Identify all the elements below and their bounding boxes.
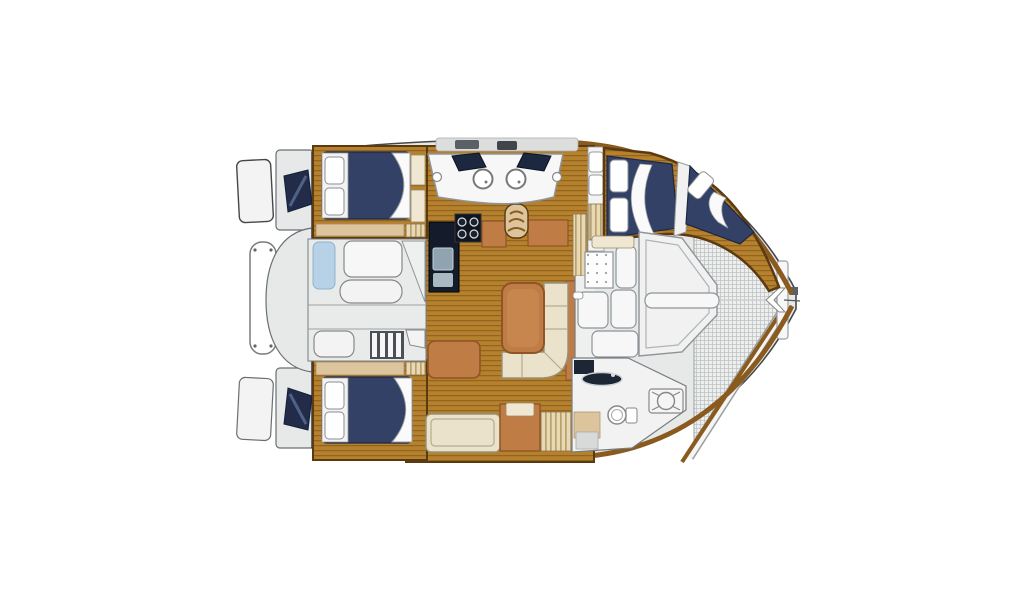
saloon-chaise [428, 341, 480, 378]
entry-locker [589, 175, 603, 195]
galley-cabinet-left [482, 221, 506, 247]
cockpit-table [344, 241, 402, 277]
striped-locker [406, 362, 425, 375]
striped-locker [406, 224, 425, 237]
pillow [325, 382, 344, 409]
island-sink [507, 170, 526, 189]
faucet [611, 373, 615, 377]
deck-hatch [649, 389, 683, 413]
head-mat-gray [576, 432, 598, 449]
transom-steps-port [284, 170, 312, 212]
pillow [325, 157, 344, 184]
cockpit-bench [340, 280, 402, 303]
cockpit-seat [314, 331, 354, 357]
roof-hatch [455, 140, 479, 149]
island-knob [433, 173, 442, 182]
catamaran-floor-plan [0, 0, 1024, 600]
stove [455, 214, 481, 242]
striped-lockers [541, 412, 574, 451]
head-sink [582, 373, 622, 386]
floor-plan-stage [0, 0, 1024, 600]
pillow [325, 188, 344, 215]
galley-cabinet-right [528, 220, 568, 246]
deck-locker [592, 236, 634, 248]
galley-locker [433, 273, 453, 287]
aft-cockpit [308, 239, 426, 361]
toilet [608, 406, 637, 424]
deck-seat [611, 290, 636, 328]
lounger-bar [645, 293, 719, 308]
bench-cushion-blue [313, 242, 335, 289]
companionway-stairs [370, 331, 404, 359]
entry-locker [589, 152, 603, 172]
swim-platform-starboard [236, 377, 273, 441]
deck-knob [573, 292, 583, 299]
foot-shelf [316, 224, 404, 236]
starboard-aft-cabin [313, 360, 427, 460]
transom-steps-starboard [284, 388, 312, 430]
coachroof-hatches [436, 138, 578, 151]
head-counter [574, 360, 594, 374]
entry-striped-locker [589, 204, 603, 240]
bedside-locker [411, 155, 425, 185]
swim-platform-port [236, 159, 273, 223]
head-shelf [316, 362, 404, 375]
pillow [610, 160, 628, 192]
companionway-steps [505, 204, 528, 238]
port-aft-cabin [313, 146, 427, 238]
island-sink [474, 170, 493, 189]
island-knob [553, 173, 562, 182]
step-pad-dotted [585, 252, 613, 288]
deck-seat [592, 331, 638, 357]
bedside-locker [411, 190, 425, 222]
cabinet-top-item [506, 403, 534, 416]
galley-sink [433, 248, 453, 270]
saloon-table-top [507, 289, 539, 347]
galley-island [428, 153, 563, 204]
pillow [610, 198, 628, 232]
forward-companionway [588, 147, 604, 251]
pillow [325, 412, 344, 439]
deck-seat [616, 246, 636, 288]
roof-hatch [497, 141, 517, 150]
